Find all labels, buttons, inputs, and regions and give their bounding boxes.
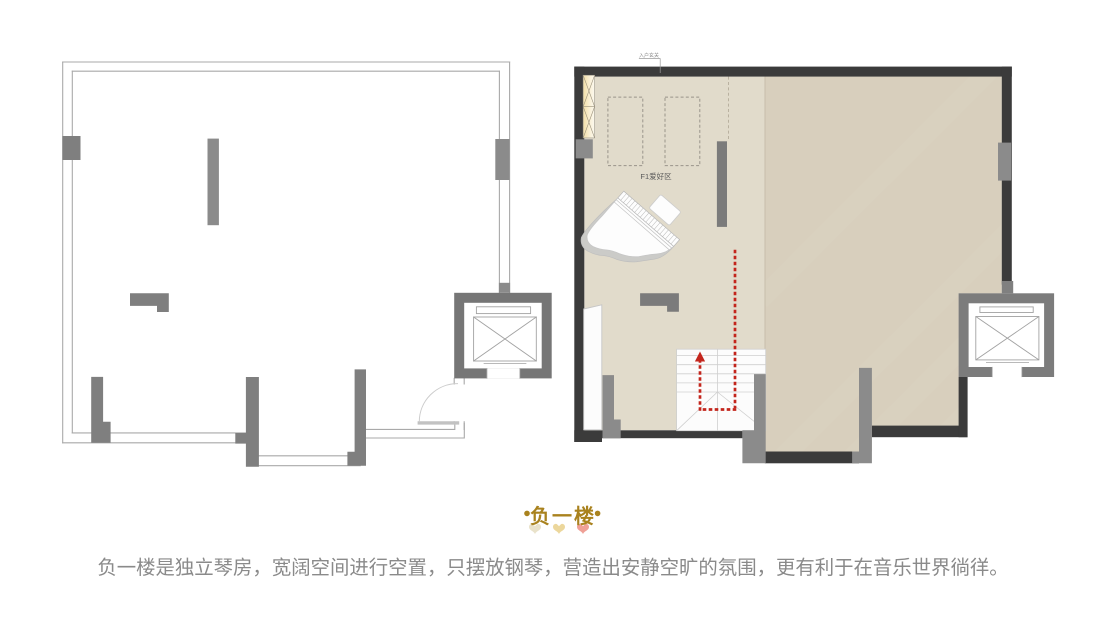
svg-text:F1爱好区: F1爱好区 (640, 171, 672, 181)
svg-text:入户玄关: 入户玄关 (639, 52, 659, 59)
